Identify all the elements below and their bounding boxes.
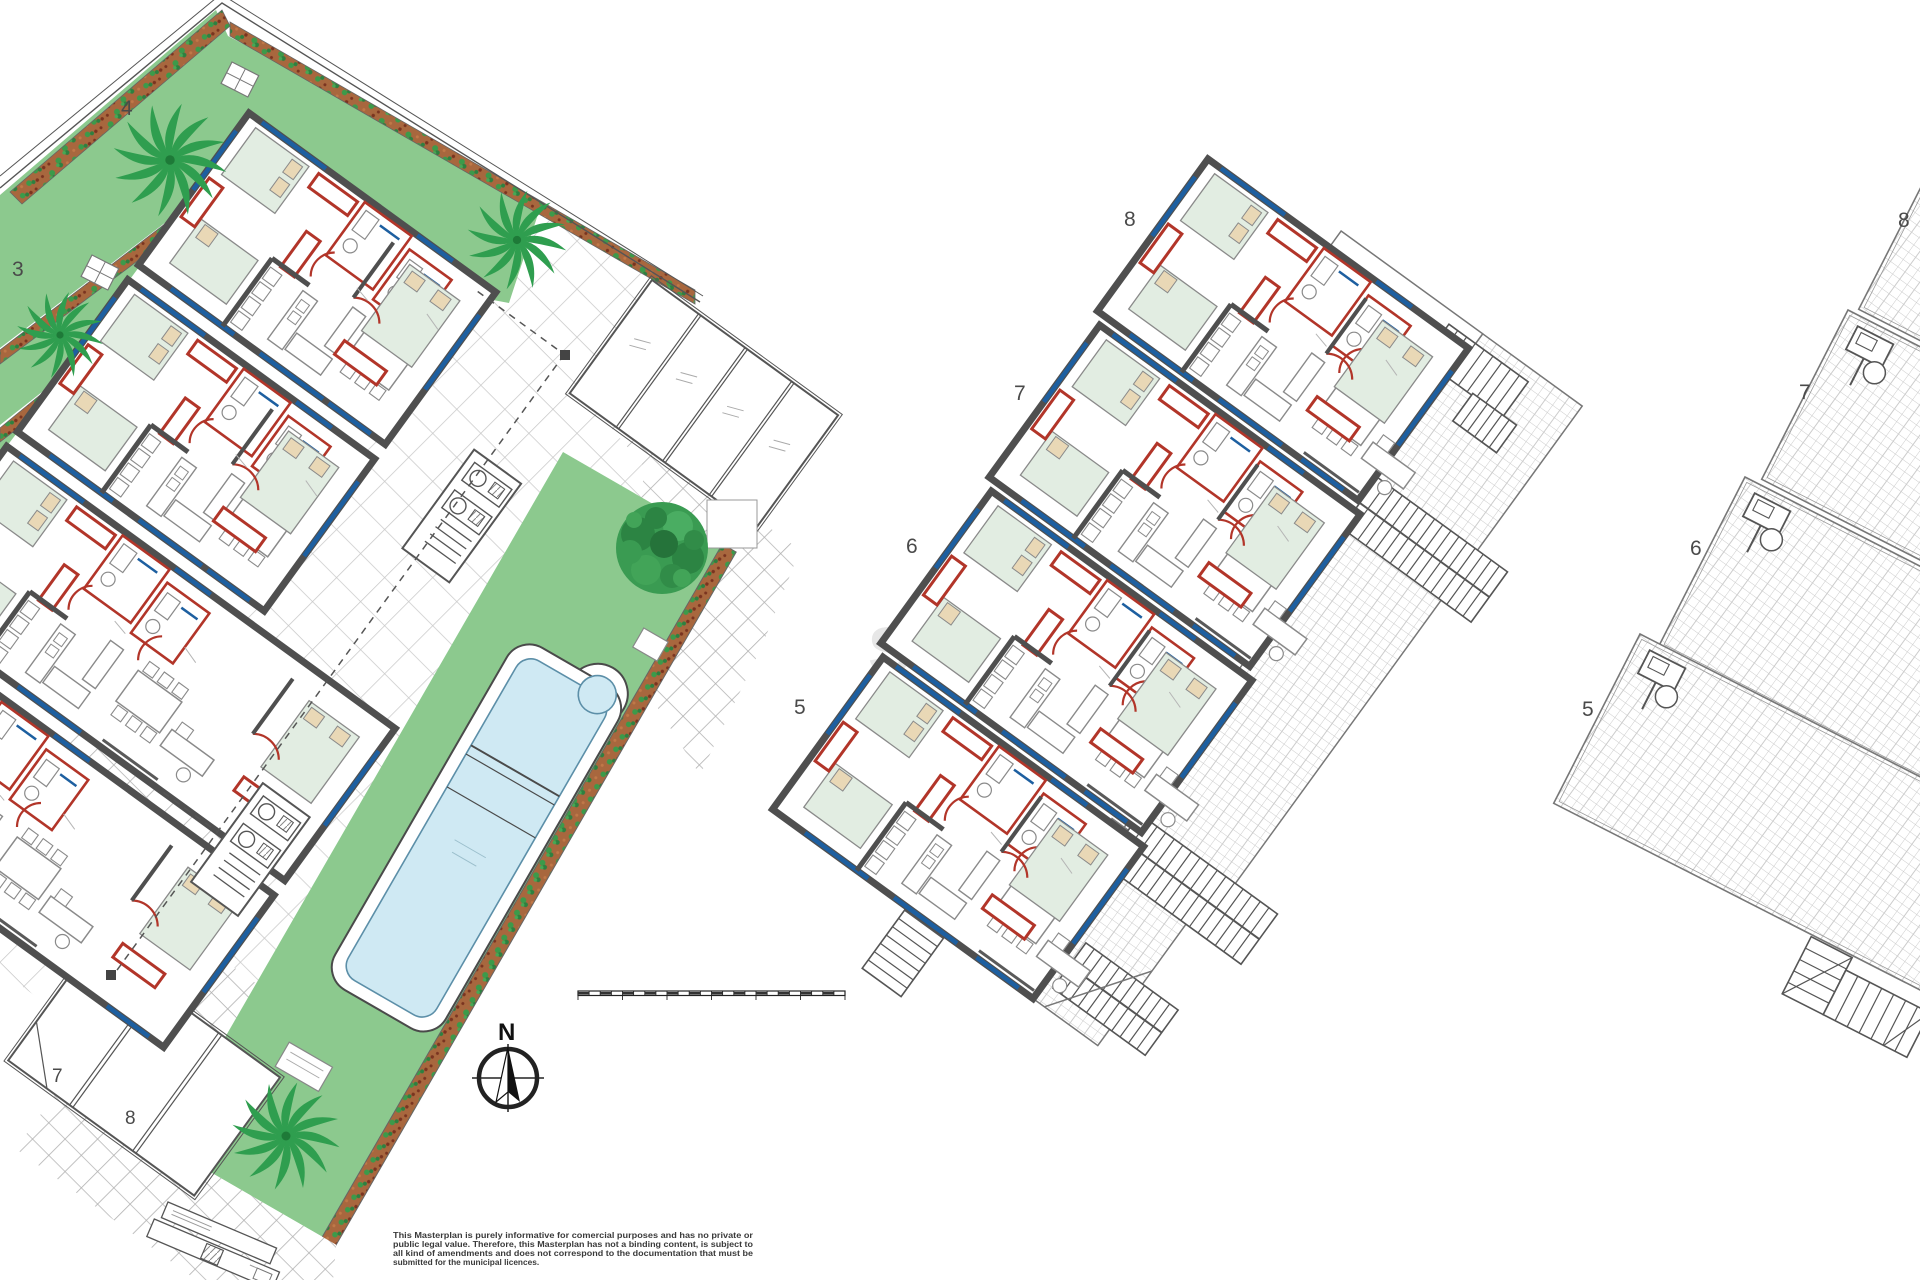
svg-text:submitted for the municipal li: submitted for the municipal licences. — [393, 1257, 539, 1267]
svg-text:7: 7 — [1799, 381, 1811, 404]
svg-text:7: 7 — [52, 1066, 63, 1087]
svg-text:N: N — [498, 1019, 515, 1046]
svg-text:4: 4 — [121, 97, 133, 120]
svg-text:3: 3 — [12, 258, 24, 281]
svg-text:6: 6 — [1690, 537, 1702, 560]
svg-text:5: 5 — [794, 696, 806, 719]
svg-text:8: 8 — [125, 1108, 136, 1129]
svg-text:6: 6 — [906, 535, 918, 558]
svg-text:5: 5 — [1582, 698, 1594, 721]
svg-text:8: 8 — [1898, 209, 1910, 232]
svg-text:8: 8 — [1124, 208, 1136, 231]
svg-text:7: 7 — [1014, 382, 1026, 405]
